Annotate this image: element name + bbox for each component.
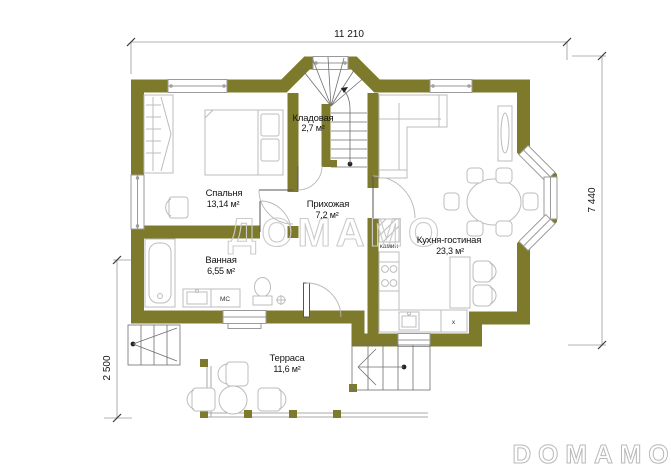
window-bay-upper (519, 145, 555, 181)
stove (379, 262, 399, 291)
stair-arrow (341, 87, 352, 166)
floor-plan-svg: 11 210 7 440 2 500 (0, 0, 671, 470)
window-bedroom-north (168, 80, 227, 93)
cabinet-x: x (441, 310, 467, 332)
label-bathroom: Ванная (205, 255, 236, 266)
area-terrace: 11,6 м² (273, 364, 300, 374)
window-bedroom-west (131, 175, 144, 229)
area-hallway: 7,2 м² (316, 210, 339, 220)
window-bathroom-south (223, 311, 266, 329)
label-bedroom: Спальня (206, 188, 243, 199)
dimension-right: 7 440 (568, 52, 606, 349)
area-bathroom: 6,55 м² (207, 266, 235, 276)
window-bay-lower (519, 215, 555, 251)
dimension-right-label: 7 440 (587, 187, 598, 212)
label-kitchen: Кухня-гостиная (417, 235, 481, 246)
label-terrace: Терраса (269, 353, 305, 364)
dimension-left-label: 2 500 (102, 355, 113, 380)
window-kitchen-north (430, 80, 472, 93)
toilet (253, 278, 272, 306)
floor-plan: 11 210 7 440 2 500 (0, 0, 671, 470)
wardrobe (144, 95, 173, 173)
bedroom-chair (166, 197, 188, 218)
washer-label: MC (220, 296, 230, 303)
brand-logo: DOMAMO (512, 439, 671, 469)
corner-sofa (379, 95, 447, 178)
label-hallway: Прихожая (307, 199, 349, 210)
area-bedroom: 13,14 м² (207, 199, 240, 209)
door-storage (298, 166, 322, 190)
terrace-steps-left (128, 325, 180, 365)
bath-counter: MC (183, 289, 240, 307)
living-furniture (379, 95, 538, 308)
area-kitchen: 23,3 м² (436, 246, 464, 256)
window-bay-east (544, 177, 557, 219)
bed (205, 110, 283, 175)
dining-set (444, 168, 538, 236)
dimension-top-label: 11 210 (334, 29, 364, 40)
bathtub (145, 239, 175, 307)
terrace-furniture (187, 362, 286, 414)
floor-drain (276, 295, 286, 305)
window-kitchen-south (398, 334, 430, 347)
area-storage: 2,7 м² (302, 123, 325, 133)
tv-unit (498, 106, 512, 161)
desk-and-chairs (450, 257, 496, 308)
terrace-steps-right (352, 345, 430, 390)
dimension-left: 2 500 (102, 256, 132, 422)
